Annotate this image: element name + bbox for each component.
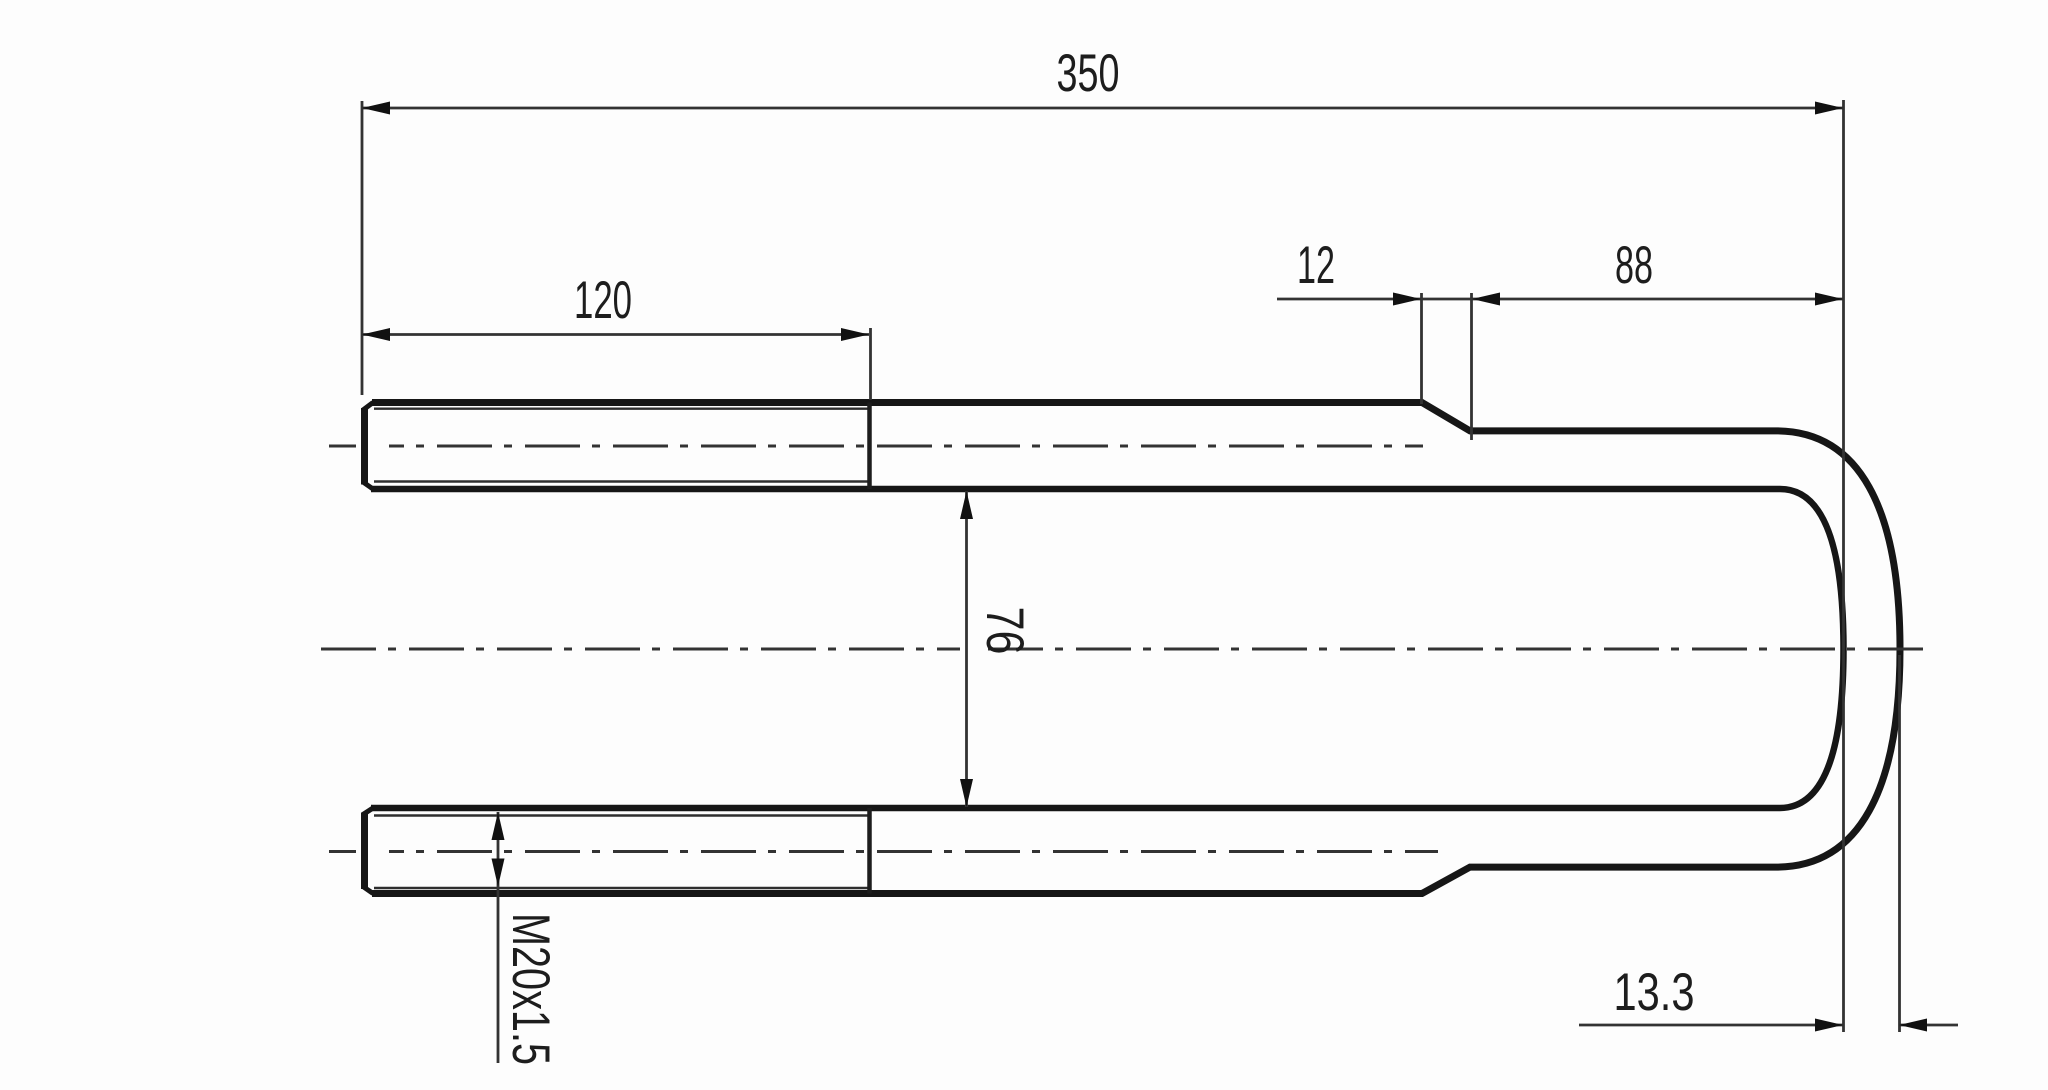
svg-text:12: 12	[1297, 236, 1335, 295]
svg-text:88: 88	[1615, 236, 1653, 295]
svg-text:13.3: 13.3	[1614, 963, 1695, 1022]
svg-text:350: 350	[1057, 44, 1120, 103]
svg-text:M20x1.5: M20x1.5	[501, 913, 560, 1065]
svg-text:120: 120	[574, 271, 632, 330]
svg-text:76: 76	[975, 607, 1034, 655]
